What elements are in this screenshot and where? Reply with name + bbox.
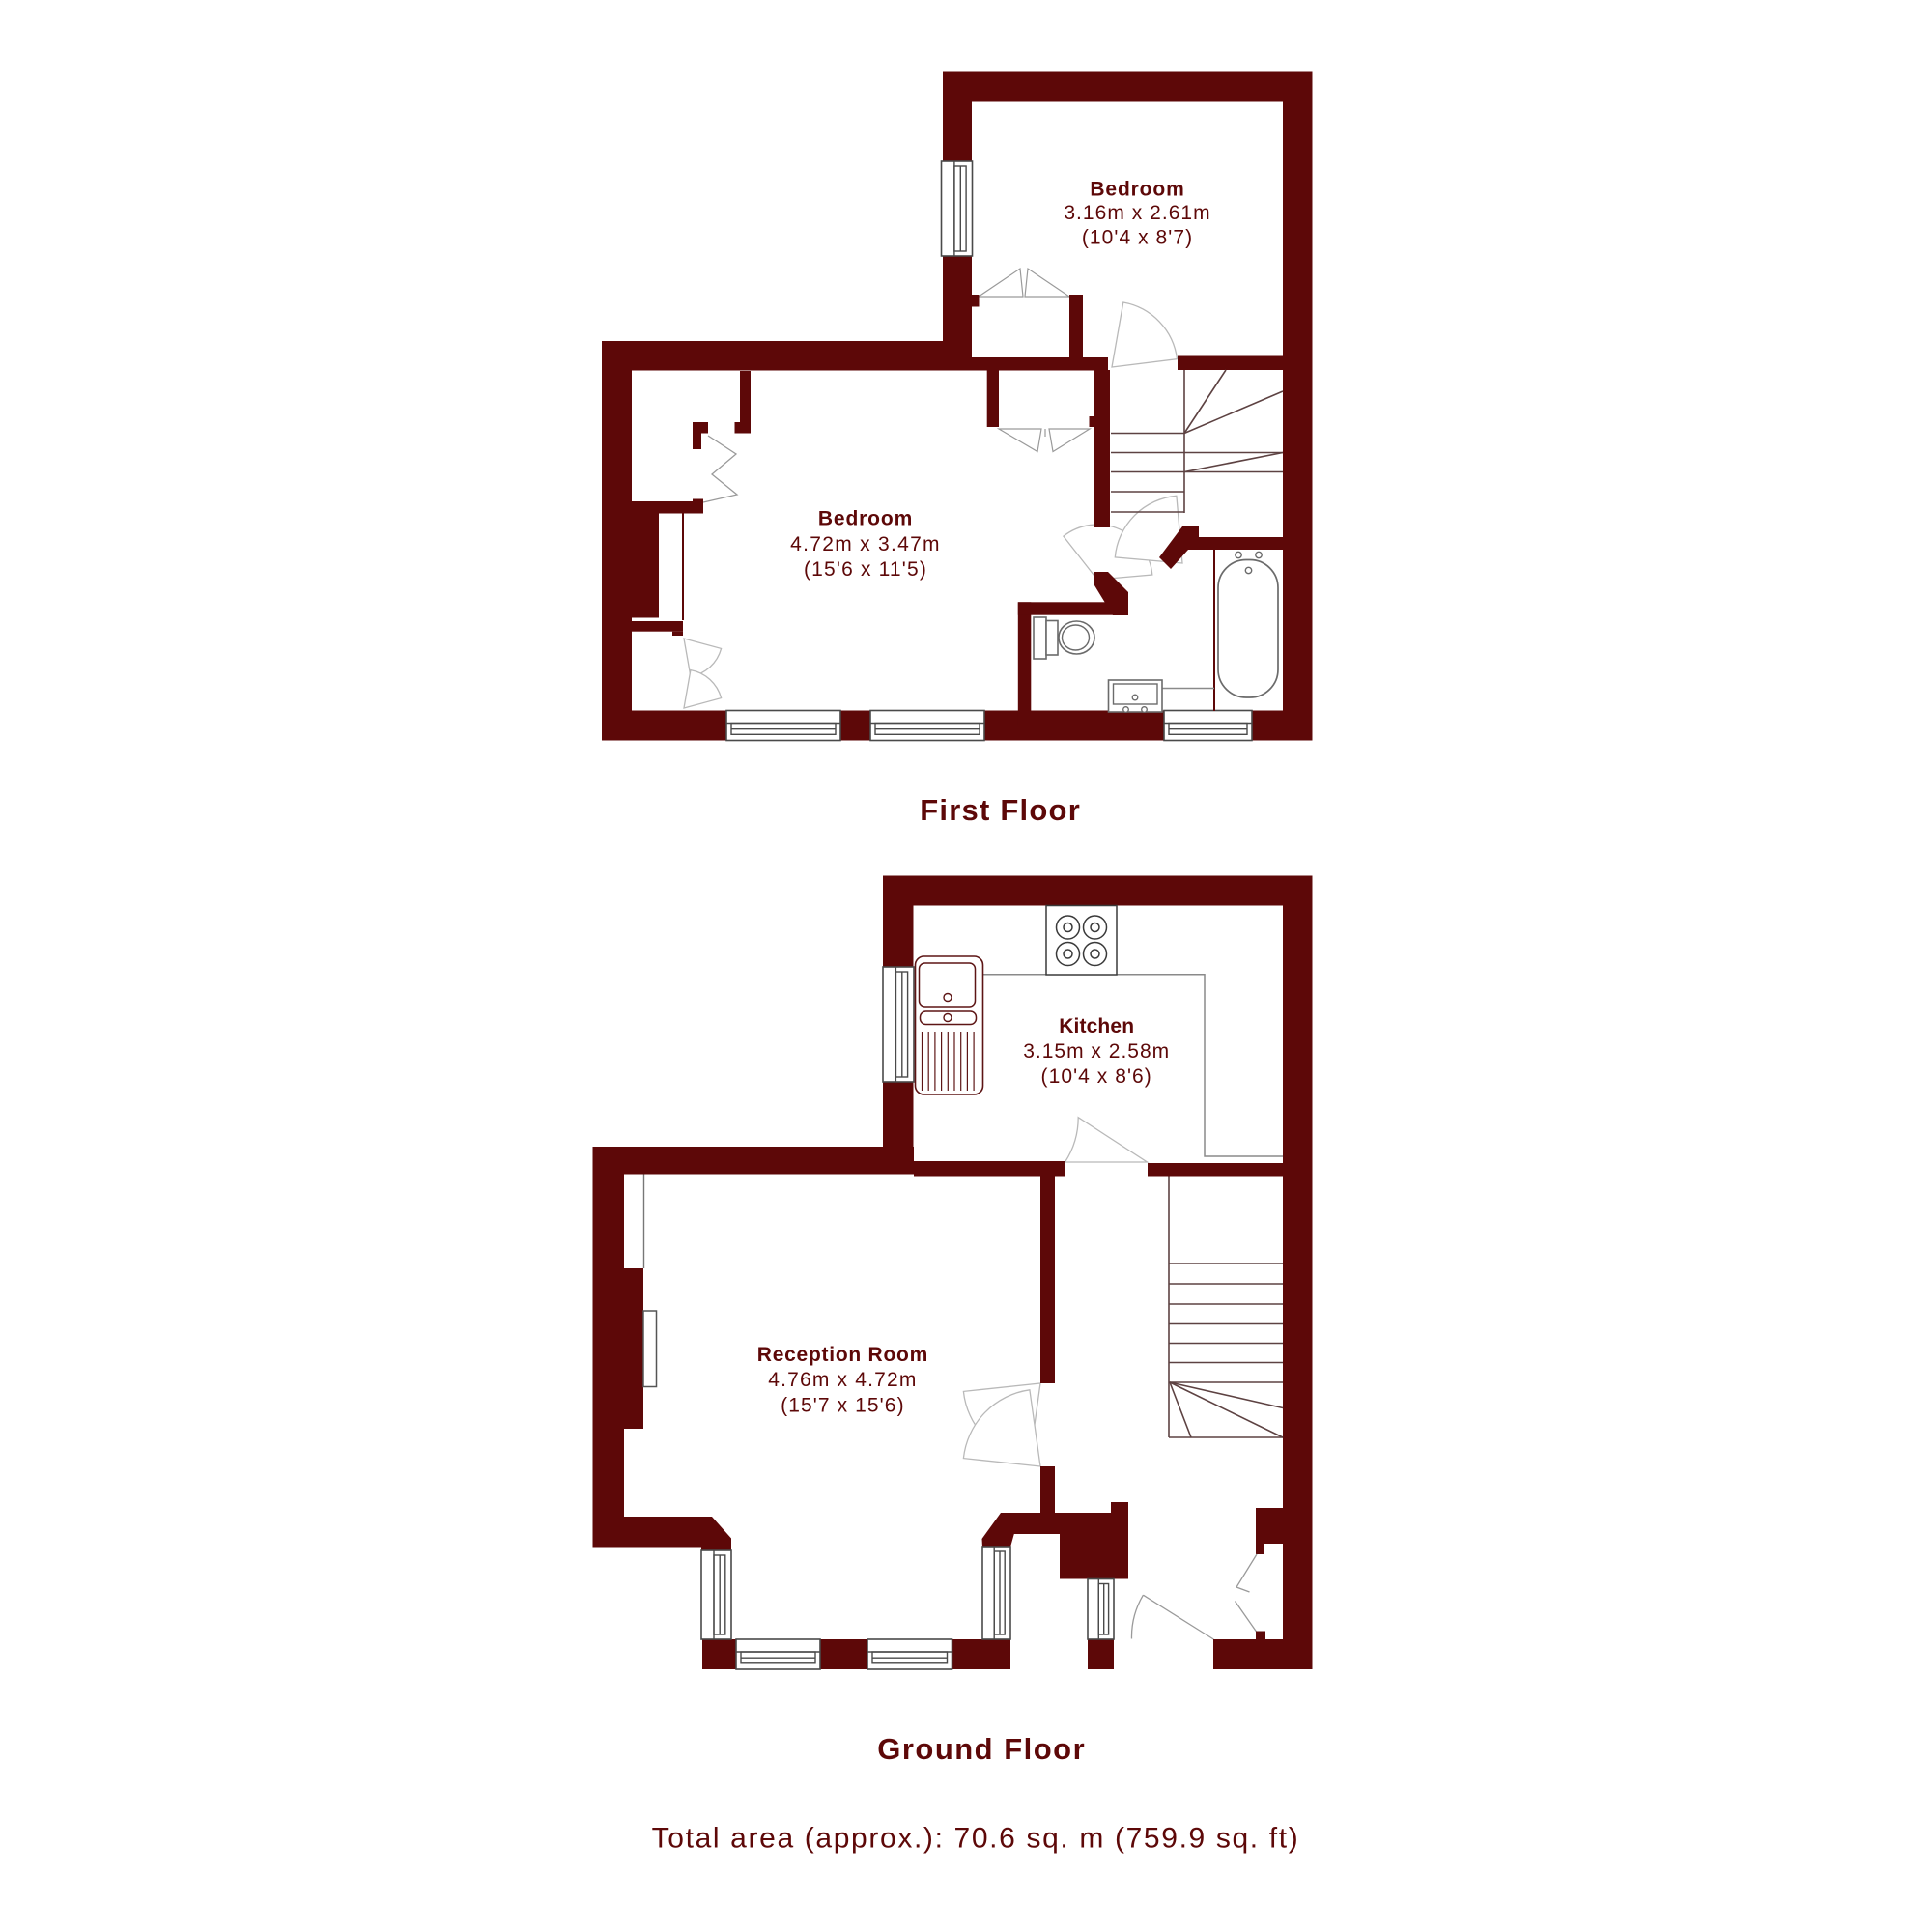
svg-text:Bedroom: Bedroom	[818, 508, 913, 530]
svg-text:(15'7 x 15'6): (15'7 x 15'6)	[781, 1395, 905, 1417]
svg-text:Bedroom: Bedroom	[1090, 179, 1184, 201]
svg-text:4.76m x 4.72m: 4.76m x 4.72m	[768, 1369, 917, 1391]
svg-text:3.15m x 2.58m: 3.15m x 2.58m	[1023, 1040, 1170, 1063]
svg-text:Kitchen: Kitchen	[1059, 1015, 1134, 1037]
svg-text:(15'6 x 11'5): (15'6 x 11'5)	[804, 558, 927, 581]
svg-text:Reception Room: Reception Room	[757, 1344, 928, 1366]
svg-text:Total area (approx.): 70.6 sq.: Total area (approx.): 70.6 sq. m (759.9 …	[652, 1822, 1300, 1854]
svg-text:First Floor: First Floor	[920, 793, 1081, 827]
svg-text:3.16m x 2.61m: 3.16m x 2.61m	[1064, 202, 1210, 224]
svg-text:(10'4 x 8'7): (10'4 x 8'7)	[1082, 226, 1193, 248]
svg-text:Ground Floor: Ground Floor	[877, 1732, 1086, 1766]
svg-text:4.72m x 3.47m: 4.72m x 3.47m	[790, 533, 941, 555]
svg-text:(10'4 x 8'6): (10'4 x 8'6)	[1041, 1065, 1152, 1088]
